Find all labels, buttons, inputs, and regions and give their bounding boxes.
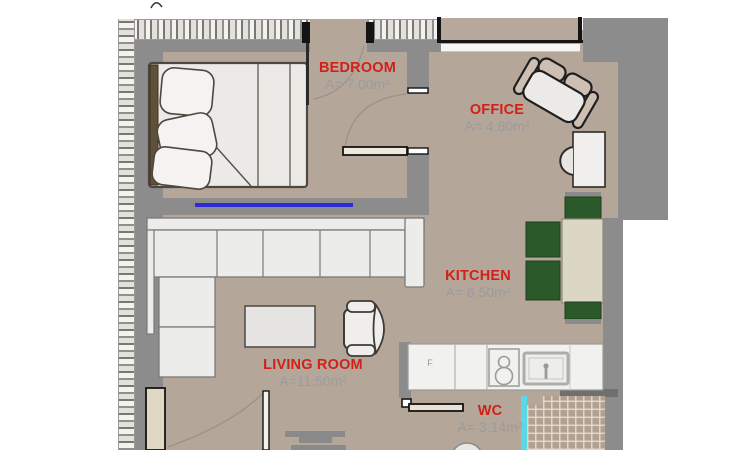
entrance-door-jamb — [366, 22, 374, 43]
faucet — [543, 363, 548, 368]
room-label-wc: WC A= 3.14m² — [440, 403, 540, 435]
dining-table — [562, 219, 603, 303]
wc-area: A= 3.14m² — [440, 419, 540, 435]
sofa — [147, 218, 424, 377]
kitchen-name: KITCHEN — [426, 268, 530, 284]
sofa-seats — [152, 230, 405, 277]
armchair-back — [374, 305, 385, 353]
office-area: A= 4.80m² — [440, 118, 554, 134]
bedroom-name: BEDROOM — [300, 60, 415, 76]
room-label-kitchen: KITCHEN A= 6.50m² — [426, 268, 530, 300]
door-swing-arc — [345, 94, 406, 147]
wc-name: WC — [440, 403, 540, 419]
toilet — [451, 443, 483, 450]
room-label-office: OFFICE A= 4.80m² — [440, 102, 554, 134]
tv-stand-bar — [291, 445, 346, 450]
living-room-area: A=11.50m² — [256, 373, 370, 389]
desk — [573, 132, 605, 187]
coffee-table — [245, 306, 315, 347]
chair-backrest — [565, 192, 601, 197]
door-leaf-thin — [263, 391, 269, 450]
fridge-cabinet-label: F — [422, 358, 438, 368]
terrace-door-leaf — [146, 388, 165, 450]
sofa-seat-left — [159, 277, 215, 327]
office-name: OFFICE — [440, 102, 554, 118]
armchair-arm — [347, 345, 375, 356]
dining-chair — [526, 222, 560, 257]
armchair-arm — [347, 301, 375, 312]
tv-stand-bar — [299, 437, 332, 443]
balcony-wall-right — [578, 17, 582, 43]
dining-chair — [565, 197, 601, 221]
pillow — [151, 146, 213, 191]
faucet-stem — [545, 368, 548, 379]
bed — [149, 63, 307, 190]
floor-plan: BEDROOM A= 7.00m² OFFICE A= 4.80m² KITCH… — [0, 0, 730, 450]
door-swing-arc — [168, 394, 262, 447]
sofa-back — [147, 218, 424, 230]
room-label-bedroom: BEDROOM A= 7.00m² — [300, 60, 415, 92]
tv-stand-bar — [285, 431, 345, 437]
balcony-wall-left — [437, 17, 441, 43]
dining-chair — [526, 261, 560, 300]
dining-chair — [565, 302, 601, 319]
bedroom-area: A= 7.00m² — [300, 76, 415, 92]
sofa-back-left — [147, 230, 154, 334]
armchair — [344, 301, 384, 356]
desk-chair — [560, 147, 573, 175]
room-label-living-room: LIVING ROOM A=11.50m² — [256, 357, 370, 389]
entrance-door-jamb — [302, 22, 310, 43]
pillow — [159, 67, 215, 117]
balcony-railing — [437, 17, 583, 43]
chair-backrest — [565, 319, 601, 324]
dining-set — [526, 192, 603, 324]
cutoff-mark — [151, 3, 162, 8]
balcony-wall-bottom — [437, 40, 583, 43]
living-room-name: LIVING ROOM — [256, 357, 370, 373]
sofa-armrest — [405, 218, 424, 287]
kitchen-area: A= 6.50m² — [426, 284, 530, 300]
sofa-seat-left — [159, 327, 215, 377]
bedroom-door-jamb — [408, 148, 428, 154]
bedroom-door-leaf — [343, 147, 407, 155]
tv-stand — [285, 431, 346, 450]
